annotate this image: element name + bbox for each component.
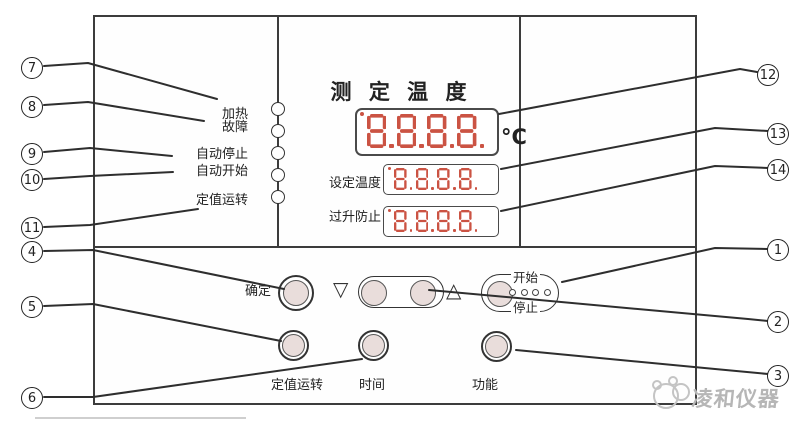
- indicator-dot-icon: [509, 289, 516, 296]
- panel-title: 测 定 温 度: [326, 76, 476, 106]
- function-button-label: 功能: [459, 379, 511, 393]
- time-button-cap[interactable]: [362, 334, 385, 357]
- callout-2-number: 2: [774, 315, 782, 330]
- callout-9-number: 9: [28, 147, 36, 162]
- up-arrow-icon: △: [446, 280, 461, 300]
- callout-5-number: 5: [28, 300, 36, 315]
- callout-8-number: 8: [28, 100, 36, 115]
- callout-10: 10: [21, 169, 43, 191]
- callout-1: 1: [767, 239, 789, 261]
- time-button[interactable]: [358, 330, 389, 361]
- fixed-run-indicator-label: 定值运转: [150, 194, 248, 208]
- callout-13-number: 13: [770, 127, 787, 142]
- control-panel-diagram: 加热 故障 自动停止 自动开始 定值运转 测 定 温 度 °C 设定温度 过升防…: [0, 0, 800, 429]
- indicator-dot-icon: [544, 289, 551, 296]
- callout-1-number: 1: [774, 243, 782, 258]
- callout-8: 8: [21, 96, 43, 118]
- watermark-logo-icon: [648, 374, 696, 414]
- decimal-indicator-dot: [388, 167, 391, 170]
- bottom-edge-line: [35, 417, 246, 419]
- function-button[interactable]: [481, 331, 512, 362]
- indicator-dot-icon: [532, 289, 539, 296]
- callout-7: 7: [21, 57, 43, 79]
- fixed-run-button-label: 定值运转: [245, 379, 349, 393]
- heating-led-icon: [271, 102, 285, 116]
- start-stop-indicator-dots: [509, 289, 551, 296]
- watermark-text: 凌和仪器: [690, 383, 781, 413]
- overheat-prevention-label: 过升防止: [327, 211, 381, 225]
- fixed-run-button[interactable]: [278, 330, 309, 361]
- callout-14-number: 14: [770, 163, 787, 178]
- callout-3: 3: [767, 365, 789, 387]
- auto-start-label: 自动开始: [150, 165, 248, 179]
- measured-temperature-display: [355, 108, 499, 156]
- callout-2: 2: [767, 311, 789, 333]
- fault-led-icon: [271, 124, 285, 138]
- callout-4-number: 4: [28, 245, 36, 260]
- indicator-dot-icon: [521, 289, 528, 296]
- panel-divider-horizontal: [93, 246, 697, 248]
- overheat-prevention-display: [383, 206, 499, 237]
- auto-stop-led-icon: [271, 146, 285, 160]
- callout-5: 5: [21, 296, 43, 318]
- increase-button[interactable]: [410, 280, 436, 306]
- callout-11: 11: [21, 217, 43, 239]
- callout-10-number: 10: [24, 173, 41, 188]
- fixed-run-button-cap[interactable]: [282, 334, 305, 357]
- decimal-indicator-dot: [360, 112, 364, 116]
- decrease-button[interactable]: [361, 280, 387, 306]
- decimal-indicator-dot: [388, 209, 391, 212]
- function-button-cap[interactable]: [485, 335, 508, 358]
- auto-stop-label: 自动停止: [150, 148, 248, 162]
- callout-13: 13: [767, 123, 789, 145]
- callout-6: 6: [21, 387, 43, 409]
- callout-4: 4: [21, 241, 43, 263]
- set-temperature-label: 设定温度: [327, 177, 381, 191]
- celsius-unit-label: °C: [501, 125, 527, 149]
- start-label: 开始: [511, 271, 540, 284]
- callout-12-number: 12: [760, 68, 777, 83]
- set-temperature-display: [383, 164, 499, 195]
- fixed-run-led-icon: [271, 190, 285, 204]
- confirm-label: 确定: [245, 285, 271, 299]
- callout-9: 9: [21, 143, 43, 165]
- callout-12: 12: [757, 64, 779, 86]
- callout-14: 14: [767, 159, 789, 181]
- up-down-button-group: [358, 276, 444, 308]
- down-arrow-icon: ▽: [333, 279, 348, 299]
- confirm-button[interactable]: [278, 275, 314, 311]
- callout-7-number: 7: [28, 61, 36, 76]
- confirm-button-cap[interactable]: [283, 280, 309, 306]
- stop-label: 停止: [511, 301, 540, 314]
- callout-11-number: 11: [24, 221, 41, 236]
- auto-start-led-icon: [271, 168, 285, 182]
- callout-6-number: 6: [28, 391, 36, 406]
- callout-3-number: 3: [774, 369, 782, 384]
- time-button-label: 时间: [346, 379, 398, 393]
- fault-label: 故障: [150, 121, 248, 135]
